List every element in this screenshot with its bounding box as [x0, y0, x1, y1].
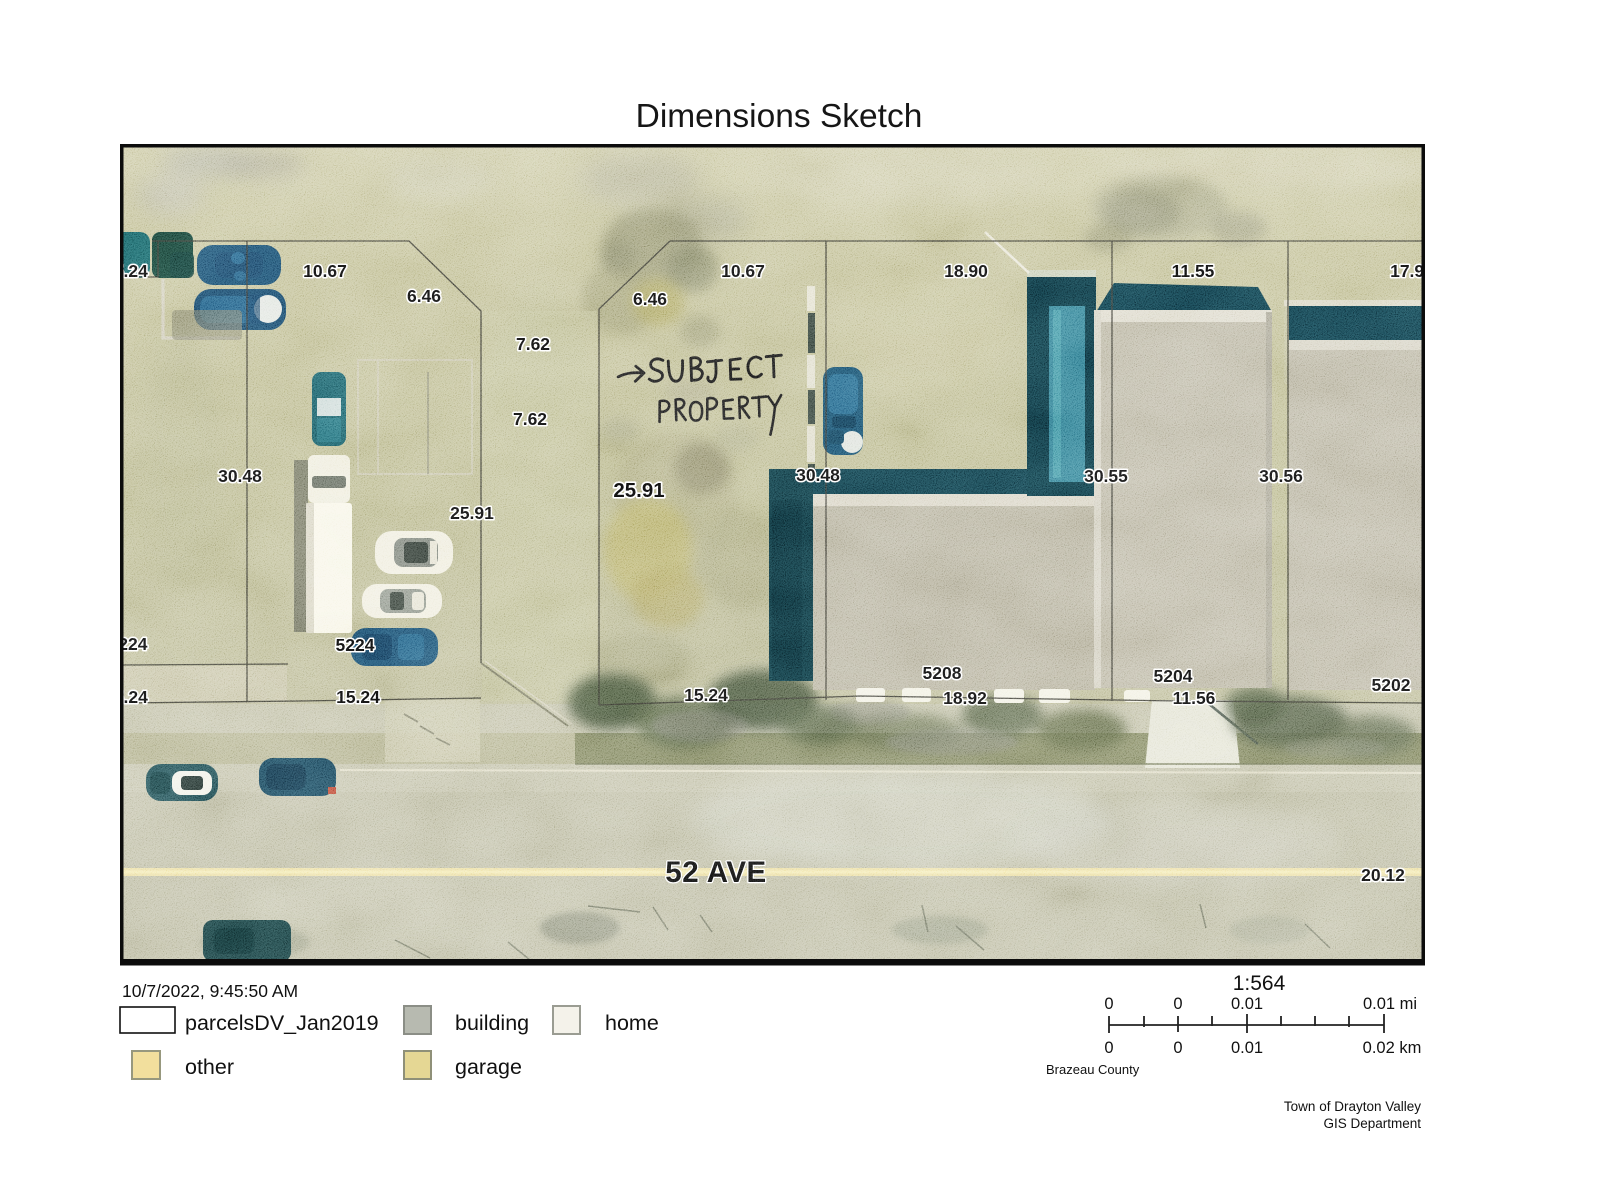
svg-text:0: 0: [1173, 995, 1182, 1013]
svg-text:10/7/2022, 9:45:50 AM: 10/7/2022, 9:45:50 AM: [122, 981, 298, 1001]
svg-text:Town of Drayton Valley: Town of Drayton Valley: [1284, 1099, 1421, 1114]
svg-text:0.01 mi: 0.01 mi: [1363, 995, 1417, 1013]
svg-text:0.01: 0.01: [1231, 995, 1263, 1013]
svg-text:0.02 km: 0.02 km: [1363, 1039, 1422, 1057]
svg-text:Brazeau County: Brazeau County: [1046, 1062, 1140, 1077]
svg-text:0: 0: [1173, 1039, 1182, 1057]
svg-text:building: building: [455, 1011, 529, 1035]
svg-text:1:564: 1:564: [1233, 972, 1286, 995]
svg-text:parcelsDV_Jan2019: parcelsDV_Jan2019: [185, 1011, 379, 1035]
svg-text:home: home: [605, 1011, 659, 1035]
svg-text:GIS Department: GIS Department: [1323, 1116, 1421, 1131]
svg-text:0: 0: [1104, 1039, 1113, 1057]
svg-text:Dimensions Sketch: Dimensions Sketch: [636, 98, 923, 135]
svg-text:other: other: [185, 1055, 234, 1079]
svg-text:0: 0: [1104, 995, 1113, 1013]
svg-text:0.01: 0.01: [1231, 1039, 1263, 1057]
svg-text:garage: garage: [455, 1055, 522, 1079]
